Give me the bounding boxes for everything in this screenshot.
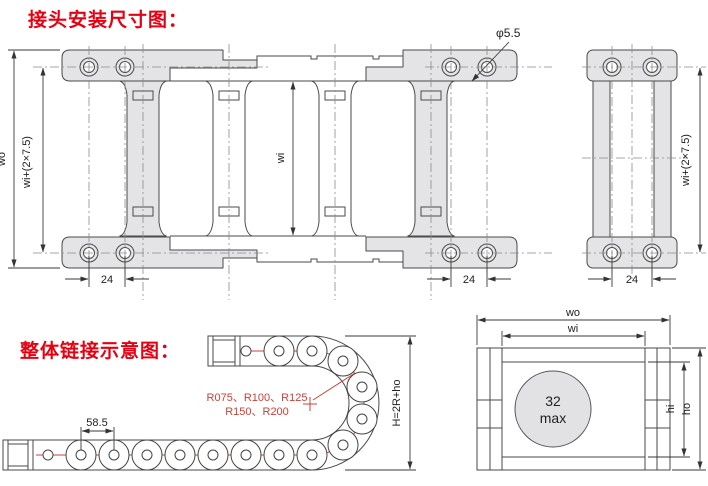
cable-circle xyxy=(515,371,591,447)
chain-bend-schematic: R075、R100、R125 R150、R200 58.5 H=2R+ho xyxy=(3,336,416,470)
bend-radii-line1: R075、R100、R125 xyxy=(207,392,308,404)
dim-label-ho: ho xyxy=(681,403,693,415)
dim-label-link-pitch: 58.5 xyxy=(86,417,107,429)
technical-drawing-page: 接头安装尺寸图： 整体链接示意图： xyxy=(0,0,708,486)
cross-section-view: 32 max wo wi hi ho xyxy=(477,307,706,470)
dim-label-mounting-width: wi+(2×7.5) xyxy=(21,136,33,189)
connector-side-view: wi+(2×7.5) 24 xyxy=(582,44,706,287)
dim-label-wo: wo xyxy=(0,152,8,167)
dim-label-section-wo: wo xyxy=(565,307,580,319)
dim-label-hi: hi xyxy=(665,405,677,414)
dim-label-section-wi: wi xyxy=(567,323,578,335)
technical-drawing-canvas: φ5.5 wo wi+(2×7.5) wi 24 24 wi+(2×7.5) 2… xyxy=(0,0,708,486)
cable-diameter-value: 32 xyxy=(545,393,561,409)
bend-radii-line2: R150、R200 xyxy=(225,406,289,418)
dim-label-pitch-left: 24 xyxy=(101,274,113,286)
dim-label-wi: wi xyxy=(275,153,287,164)
dim-label-pitch-right: 24 xyxy=(463,274,475,286)
dim-label-side-mounting-width: wi+(2×7.5) xyxy=(680,134,692,187)
cable-diameter-suffix: max xyxy=(540,410,566,426)
dim-label-bend-height: H=2R+ho xyxy=(391,379,403,426)
dim-label-hole-diameter: φ5.5 xyxy=(496,26,521,40)
dim-label-side-pitch: 24 xyxy=(626,274,638,286)
connector-top-view: φ5.5 wo wi+(2×7.5) wi 24 24 xyxy=(0,26,552,300)
